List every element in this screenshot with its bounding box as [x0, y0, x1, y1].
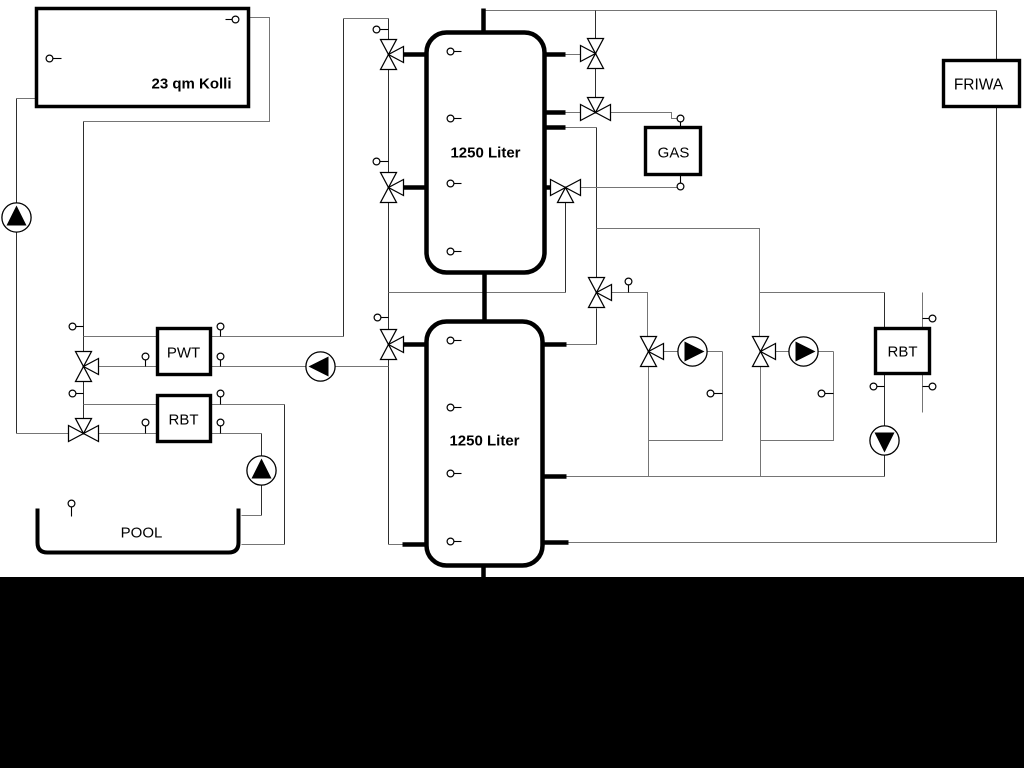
svg-text:FRIWA: FRIWA [954, 77, 1004, 94]
svg-text:RBT: RBT [169, 412, 199, 429]
svg-text:RBT: RBT [888, 344, 918, 361]
svg-text:PWT: PWT [167, 345, 200, 362]
svg-text:1250 Liter: 1250 Liter [449, 433, 519, 450]
svg-text:GAS: GAS [658, 145, 690, 162]
svg-text:23 qm Kolli: 23 qm Kolli [151, 76, 231, 93]
svg-text:POOL: POOL [121, 525, 163, 542]
svg-text:1250 Liter: 1250 Liter [450, 145, 520, 162]
